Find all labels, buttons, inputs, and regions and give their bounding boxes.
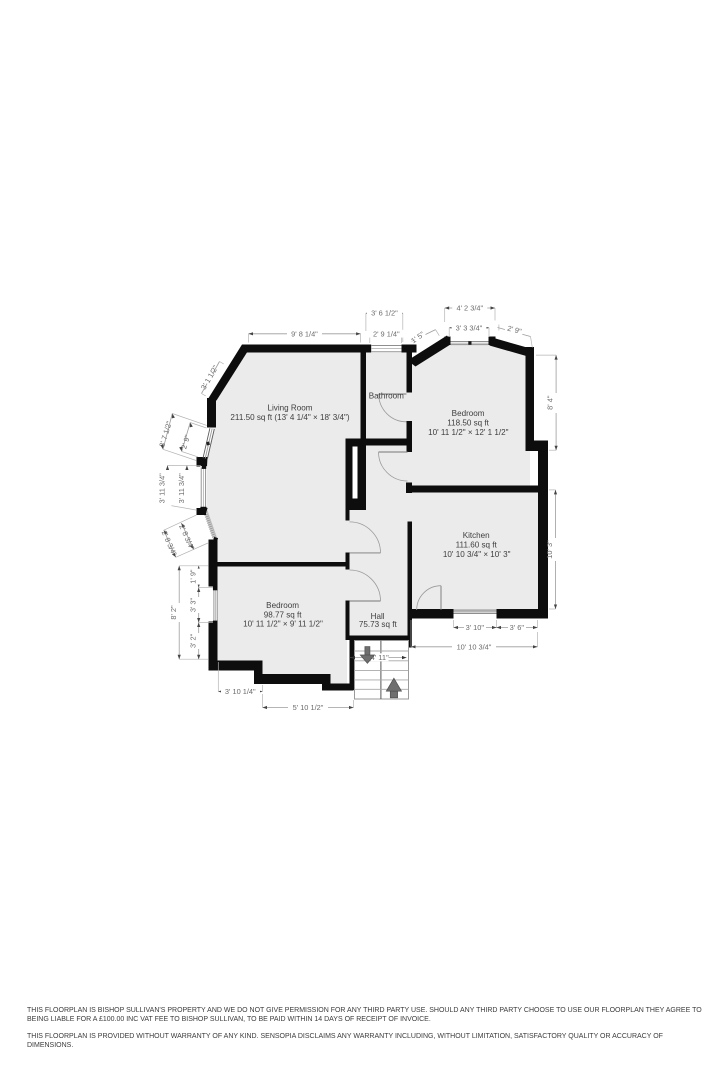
svg-text:10' 11 1/2" × 9' 11 1/2": 10' 11 1/2" × 9' 11 1/2": [243, 620, 323, 629]
svg-text:1' 5": 1' 5": [409, 329, 426, 345]
svg-text:2' 9": 2' 9": [179, 433, 192, 450]
svg-text:Bedroom: Bedroom: [266, 601, 299, 610]
svg-text:9' 8 1/4": 9' 8 1/4": [291, 329, 318, 338]
svg-text:111.60 sq ft: 111.60 sq ft: [456, 541, 498, 550]
svg-text:5' 10 1/2": 5' 10 1/2": [293, 703, 324, 712]
svg-text:3' 6 1/2": 3' 6 1/2": [371, 309, 398, 318]
svg-text:10' 10 3/4" × 10' 3": 10' 10 3/4" × 10' 3": [443, 550, 511, 559]
svg-text:2' 9 1/4": 2' 9 1/4": [373, 329, 400, 338]
svg-text:1' 9": 1' 9": [189, 569, 198, 584]
svg-text:10' 11 1/2" × 12' 1 1/2": 10' 11 1/2" × 12' 1 1/2": [428, 428, 509, 437]
svg-text:3' 10 1/4": 3' 10 1/4": [225, 687, 256, 696]
svg-text:Bathroom: Bathroom: [369, 391, 404, 400]
svg-text:10' 10 3/4": 10' 10 3/4": [457, 642, 492, 651]
svg-text:3' 10": 3' 10": [466, 623, 485, 632]
svg-text:75.73 sq ft: 75.73 sq ft: [359, 620, 398, 629]
svg-text:4' 2 3/4": 4' 2 3/4": [456, 304, 483, 313]
svg-text:8' 4": 8' 4": [546, 395, 555, 410]
svg-text:3' 11 3/4": 3' 11 3/4": [177, 473, 186, 504]
svg-text:3' 11 3/4": 3' 11 3/4": [157, 473, 166, 504]
svg-text:Kitchen: Kitchen: [463, 531, 490, 540]
svg-text:3' 3 3/4": 3' 3 3/4": [456, 323, 483, 332]
svg-text:2' 8 3/4": 2' 8 3/4": [177, 523, 196, 551]
svg-text:118.50 sq ft: 118.50 sq ft: [447, 419, 489, 428]
svg-text:4' 11": 4' 11": [371, 653, 389, 662]
svg-text:Bedroom: Bedroom: [452, 409, 485, 418]
svg-text:2' 9": 2' 9": [506, 324, 523, 336]
svg-text:Living Room: Living Room: [268, 403, 313, 412]
svg-text:2' 8 3/4": 2' 8 3/4": [160, 529, 179, 557]
svg-text:211.50 sq ft (13' 4 1/4" × 18': 211.50 sq ft (13' 4 1/4" × 18' 3/4"): [230, 413, 349, 422]
svg-text:3' 7 1/2": 3' 7 1/2": [157, 420, 174, 448]
svg-text:98.77 sq ft: 98.77 sq ft: [264, 610, 303, 619]
svg-text:3' 2": 3' 2": [189, 633, 198, 648]
svg-text:3' 6": 3' 6": [510, 623, 525, 632]
svg-text:3' 3": 3' 3": [189, 597, 198, 612]
svg-text:10' 3": 10' 3": [545, 540, 554, 559]
svg-text:8' 2": 8' 2": [169, 605, 178, 620]
